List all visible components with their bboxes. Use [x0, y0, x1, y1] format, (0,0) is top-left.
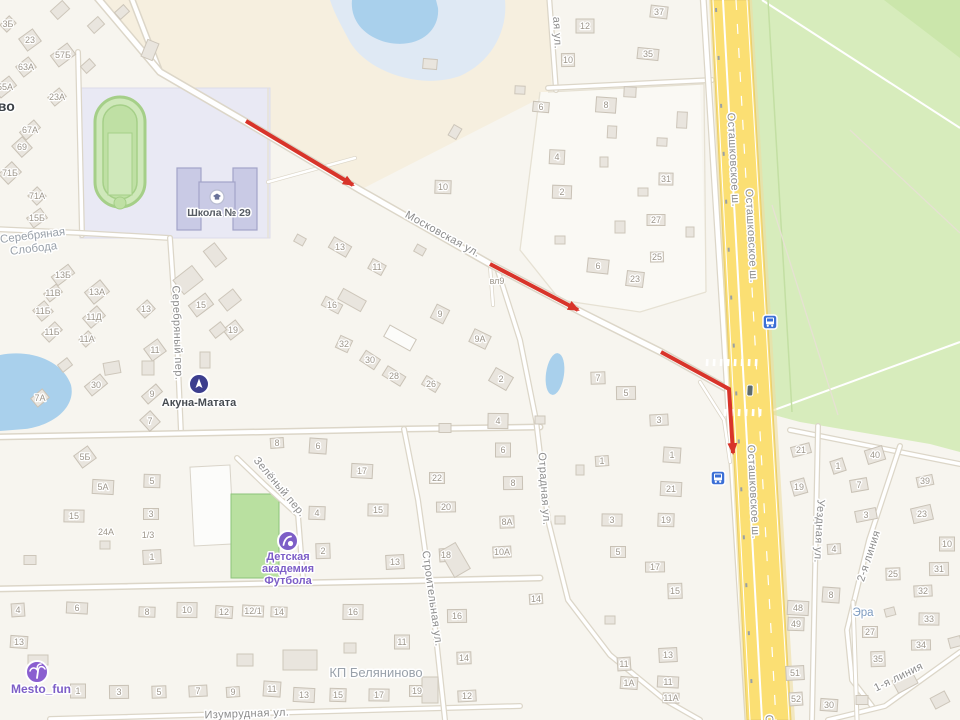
house-number-label: 21: [666, 484, 676, 494]
place-label: Эра: [852, 607, 874, 619]
house-number-label: 19: [661, 515, 671, 525]
house-number-label: 3Б: [3, 19, 14, 29]
house-number-label: 55А: [0, 82, 13, 92]
house-number-label: 11А: [79, 334, 94, 344]
poi-label: Mesto_fun: [11, 682, 71, 696]
house-number-label: 5Б: [80, 452, 91, 462]
house-number-label: 26: [426, 379, 436, 389]
house-number-label: 14: [274, 607, 284, 617]
house-number-label: 1: [599, 456, 604, 466]
house-number-label: 14: [459, 653, 469, 663]
house-number-label: 1: [75, 686, 80, 696]
house-number-label: 5: [623, 388, 628, 398]
house-number-label: 2: [498, 374, 503, 384]
school-icon[interactable]: [210, 190, 224, 204]
house-number-label: 9: [149, 389, 154, 399]
house-number-label: 16: [348, 607, 358, 617]
house-number-label: 11: [397, 637, 406, 647]
building: [423, 58, 438, 69]
house-number-label: 7: [147, 416, 152, 426]
house-number-label: 1: [669, 450, 674, 460]
house-number-label: 10: [942, 539, 952, 549]
house-number-label: 1/3: [142, 530, 155, 540]
house-number-label: 10: [563, 55, 573, 65]
house-number-label: 14: [531, 594, 541, 604]
bus-stop-icon[interactable]: [711, 471, 725, 485]
house-number-label: 10А: [494, 547, 510, 557]
house-number-label: 51: [790, 668, 800, 678]
house-number-label: 10: [438, 182, 448, 192]
house-number-label: 6: [315, 441, 320, 451]
house-number-label: 8А: [501, 517, 512, 527]
house-number-label: 71А: [29, 191, 45, 201]
house-number-label: 17: [357, 466, 367, 476]
house-number-label: 7А: [34, 393, 45, 403]
building: [555, 236, 565, 244]
house-number-label: 67А: [22, 125, 38, 135]
house-number-label: 15: [670, 586, 680, 596]
street-label: Изумрудная ул.: [204, 707, 289, 720]
house-number-label: 4: [831, 544, 836, 554]
house-number-label: 3: [148, 509, 153, 519]
house-number-label: 33: [924, 614, 934, 624]
house-number-label: 37: [654, 7, 664, 17]
building: [657, 138, 667, 147]
building: [677, 112, 688, 129]
house-number-label: 5: [156, 687, 161, 697]
house-number-label: 13: [14, 637, 24, 647]
house-number-label: 11: [150, 345, 159, 355]
house-number-label: 9: [437, 309, 442, 319]
house-number-label: 48: [793, 603, 803, 613]
building: [344, 643, 356, 653]
house-number-label: 15: [333, 690, 343, 700]
house-number-label: 4: [15, 605, 20, 615]
house-number-label: 52: [791, 694, 801, 704]
house-number-label: 18: [441, 550, 451, 560]
house-number-label: 1: [149, 552, 154, 562]
house-number-label: 6: [500, 445, 505, 455]
house-number-label: 31: [661, 174, 671, 184]
building: [103, 361, 121, 376]
house-number-label: 39: [920, 476, 930, 486]
house-number-label: 19: [412, 686, 422, 696]
house-number-label: 35: [643, 49, 653, 59]
house-number-label: 35: [873, 654, 883, 664]
house-number-label: вл9: [490, 276, 505, 286]
house-number-label: 8: [274, 438, 279, 448]
house-number-label: 49: [791, 619, 801, 629]
building: [24, 556, 36, 565]
house-number-label: 15: [373, 505, 383, 515]
poi-label: Детская: [266, 551, 309, 563]
house-number-label: 9А: [474, 334, 485, 344]
house-number-label: 3: [116, 687, 121, 697]
house-number-label: 11Б: [44, 327, 59, 337]
house-number-label: 30: [91, 380, 101, 390]
house-number-label: 16: [327, 300, 337, 310]
house-number-label: 1: [835, 461, 840, 471]
house-number-label: 28: [389, 371, 399, 381]
house-number-label: 34: [916, 640, 926, 650]
house-number-label: 9: [230, 687, 235, 697]
house-number-label: 19: [794, 482, 804, 492]
house-number-label: 2: [320, 546, 325, 556]
house-number-label: 11: [372, 262, 381, 272]
house-number-label: 12: [462, 691, 472, 701]
house-number-label: 12/1: [244, 606, 262, 616]
compass-icon[interactable]: [189, 374, 209, 394]
house-number-label: 15: [196, 300, 206, 310]
house-number-label: 7: [856, 480, 861, 490]
house-number-label: 5: [615, 547, 620, 557]
house-number-label: 10: [182, 605, 192, 615]
house-number-label: 20: [441, 502, 451, 512]
building: [555, 516, 565, 524]
house-number-label: 12: [219, 607, 229, 617]
house-number-label: 7: [195, 686, 200, 696]
soccer-icon[interactable]: [278, 531, 298, 551]
poi-label: Футбола: [264, 575, 312, 587]
house-number-label: 11Д: [86, 312, 101, 322]
building: [422, 677, 438, 703]
house-number-label: 11А: [663, 693, 678, 703]
building: [624, 87, 637, 98]
building: [515, 86, 525, 95]
house-number-label: 40: [870, 450, 880, 460]
building: [237, 654, 253, 666]
house-number-label: 7: [595, 373, 600, 383]
house-number-label: 23: [25, 35, 35, 45]
house-number-label: 24А: [98, 527, 114, 537]
house-number-label: 4: [314, 508, 319, 518]
house-number-label: 31: [934, 564, 944, 574]
house-number-label: 11: [663, 677, 672, 687]
house-number-label: 8: [828, 590, 833, 600]
house-number-label: 13: [335, 242, 345, 252]
house-number-label: 27: [865, 627, 875, 637]
house-number-label: 63А: [18, 62, 34, 72]
house-number-label: 22: [432, 473, 442, 483]
building: [605, 616, 615, 624]
house-number-label: 11В: [45, 288, 60, 298]
house-number-label: 13А: [89, 287, 105, 297]
house-number-label: 11Б: [35, 306, 50, 316]
house-number-label: 71Б: [2, 168, 18, 178]
house-number-label: 30: [365, 355, 375, 365]
place-label: ово: [0, 98, 15, 114]
house-number-label: 13: [663, 650, 673, 660]
house-number-label: 4: [495, 416, 500, 426]
building: [576, 465, 584, 475]
building: [200, 352, 210, 368]
building: [142, 361, 154, 375]
house-number-label: 5: [149, 476, 154, 486]
house-number-label: 15: [69, 511, 79, 521]
house-number-label: 5А: [97, 482, 108, 492]
map-viewport[interactable]: Московская ул.Осташковское ш.Осташковско…: [0, 0, 960, 720]
building: [615, 221, 625, 233]
house-number-label: 25: [652, 252, 662, 262]
house-number-label: 23: [917, 509, 927, 519]
house-number-label: 21: [796, 445, 806, 455]
forest-area: [745, 0, 960, 452]
map-canvas[interactable]: Московская ул.Осташковское ш.Осташковско…: [0, 0, 960, 720]
house-number-label: 6: [74, 603, 79, 613]
poi-label: Акуна-Матата: [162, 397, 237, 409]
house-number-label: 17: [374, 690, 384, 700]
house-number-label: 25: [888, 569, 898, 579]
house-number-label: 32: [918, 586, 928, 596]
building: [638, 188, 648, 196]
house-number-label: 11: [619, 659, 628, 669]
building: [600, 157, 608, 167]
building: [283, 650, 317, 670]
house-number-label: 8: [603, 100, 608, 110]
stadium-circle: [114, 197, 126, 209]
house-number-label: 4: [554, 152, 559, 162]
bus-stop-icon[interactable]: [763, 315, 777, 329]
building: [100, 541, 110, 549]
house-number-label: 27: [651, 215, 661, 225]
house-number-label: 11: [267, 684, 276, 694]
house-number-label: 32: [339, 339, 349, 349]
house-number-label: 8: [510, 478, 515, 488]
poi-label: академия: [262, 563, 314, 575]
house-number-label: 13Б: [55, 270, 71, 280]
house-number-label: 1А: [623, 678, 634, 688]
house-number-label: 17: [650, 562, 660, 572]
house-number-label: 3: [609, 515, 614, 525]
building: [856, 696, 868, 705]
building: [686, 227, 694, 237]
street-label: ая ул.: [550, 16, 564, 49]
house-number-label: 69: [17, 142, 27, 152]
house-number-label: 13: [299, 690, 309, 700]
building: [535, 416, 545, 424]
bus-platform-icon: [747, 385, 754, 396]
house-number-label: 6: [595, 261, 600, 271]
house-number-label: 13: [390, 557, 400, 567]
building: [439, 424, 451, 433]
house-number-label: 3: [656, 415, 661, 425]
house-number-label: 8: [144, 607, 149, 617]
house-number-label: 16: [452, 611, 462, 621]
house-number-label: 2: [559, 187, 564, 197]
building: [607, 126, 617, 138]
house-number-label: 3: [863, 510, 868, 520]
house-number-label: 13: [141, 304, 151, 314]
place-label: КП Беляниново: [329, 665, 422, 680]
warehouse-building: [190, 465, 234, 546]
house-number-label: 12: [580, 21, 590, 31]
house-number-label: 19: [228, 325, 238, 335]
house-number-label: 23: [630, 274, 640, 284]
house-number-label: 57Б: [55, 50, 71, 60]
palm-icon[interactable]: [26, 661, 48, 683]
house-number-label: 23А: [49, 92, 65, 102]
poi-label: Школа № 29: [187, 207, 251, 219]
stadium-field: [108, 133, 132, 195]
house-number-label: 30: [824, 700, 834, 710]
house-number-label: 15Б: [29, 213, 45, 223]
house-number-label: 6: [538, 102, 543, 112]
